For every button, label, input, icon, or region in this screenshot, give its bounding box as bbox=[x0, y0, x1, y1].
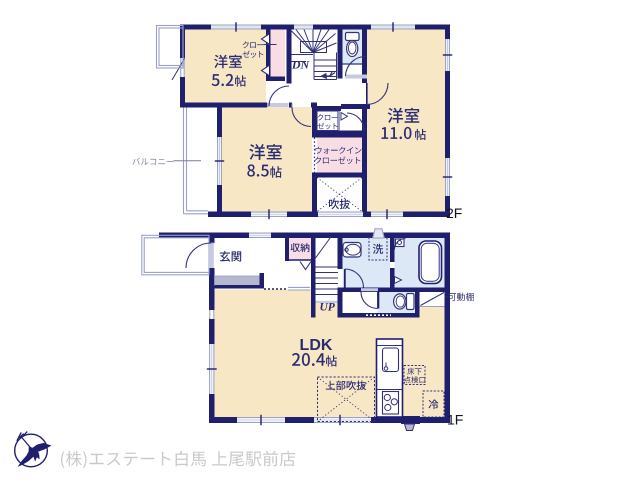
svg-text:DN: DN bbox=[291, 58, 311, 72]
svg-text:1F: 1F bbox=[447, 412, 463, 428]
svg-text:UP: UP bbox=[320, 302, 336, 314]
svg-text:LDK: LDK bbox=[300, 337, 333, 354]
svg-text:2F: 2F bbox=[446, 205, 462, 221]
